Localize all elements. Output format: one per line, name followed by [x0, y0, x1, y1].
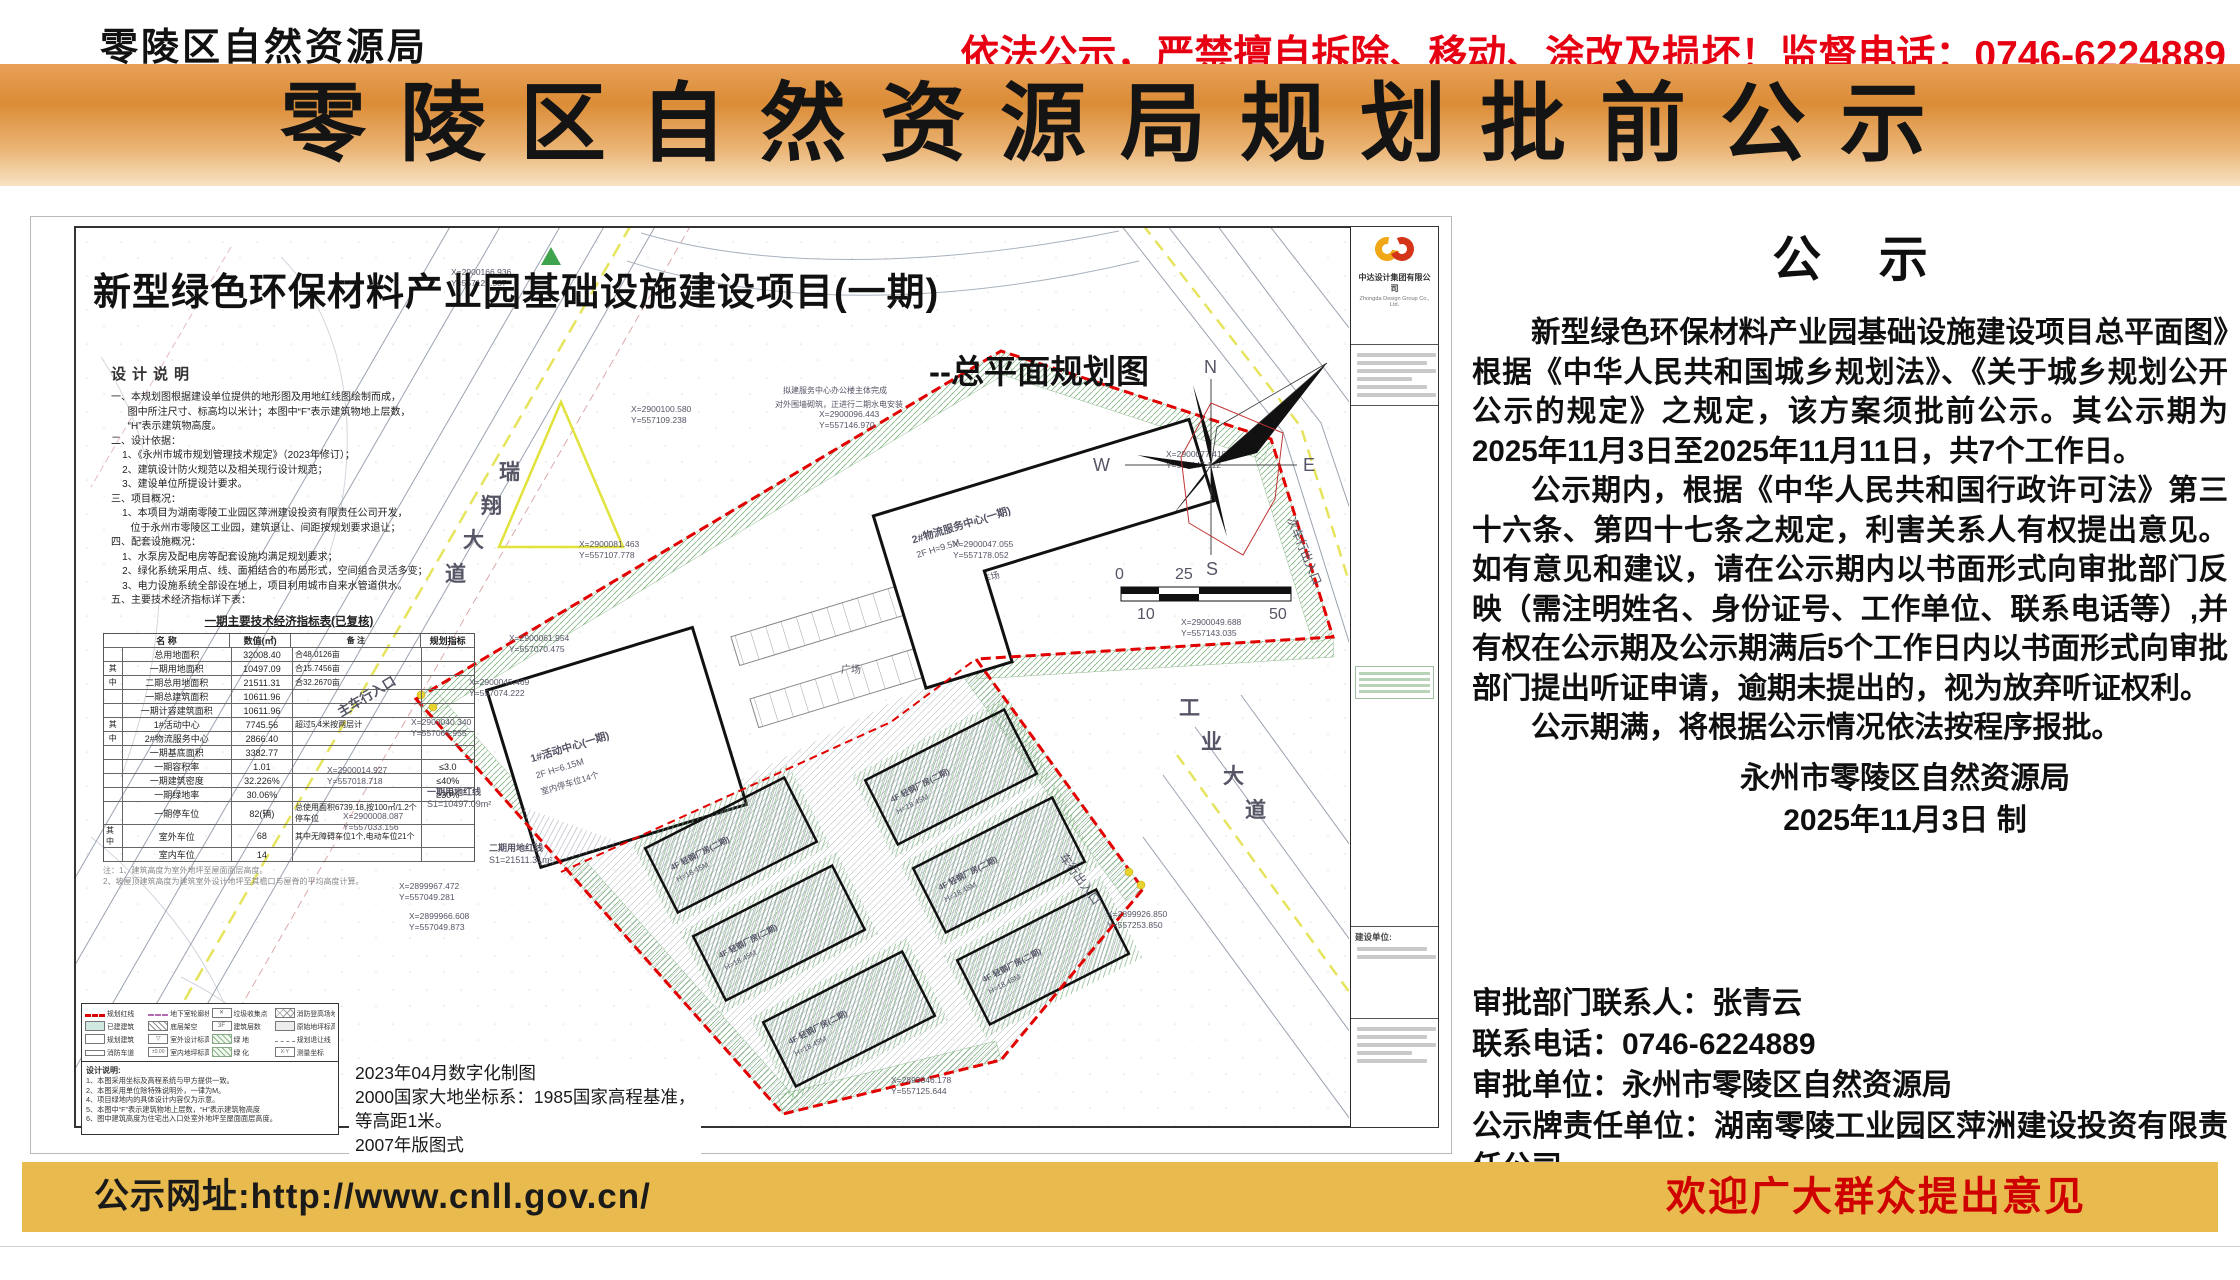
svg-text:25: 25 — [1175, 566, 1193, 583]
svg-text:10: 10 — [1137, 606, 1155, 623]
legend-swatch — [85, 1050, 105, 1056]
svg-text:Y=557143.035: Y=557143.035 — [1181, 628, 1237, 638]
design-note-line: 3、电力设施系统全部设在地上，项目利用城市自来水管道供水。 — [111, 580, 491, 595]
design-note-line: 五、主要技术经济指标详下表： — [111, 594, 491, 609]
survey-info-line: 2023年04月数字化制图 — [355, 1061, 695, 1085]
svg-text:X=2900077.410: X=2900077.410 — [1166, 449, 1227, 459]
legend-swatch — [275, 1047, 295, 1057]
legend-item: 建筑层数 — [212, 1021, 272, 1031]
indicator-table-row: 一期停车位 82(辆) 总使用面积6739.18,按100㎡/1.2个停车位 — [104, 802, 474, 825]
title-block-fineprint — [1351, 345, 1438, 406]
title-block-mini-table — [1355, 666, 1434, 699]
legend-label: 规划建筑 — [107, 1034, 134, 1044]
notice-paragraph-1: 新型绿色环保材料产业园基础设施建设项目总平面图》根据《中华人民共和国城乡规划法》… — [1472, 313, 2228, 471]
company-name-en: Zhongda Design Group Co., Ltd. — [1355, 296, 1434, 308]
title-banner: 零陵区自然资源局规划批前公示 — [0, 64, 2240, 186]
indicator-table-header: 名 称 数值(㎡) 备 注 规划指标 — [104, 634, 474, 648]
legend-swatch — [148, 1047, 168, 1057]
legend-label: 原始地坪标高 — [297, 1021, 335, 1031]
svg-text:X=2900061.954: X=2900061.954 — [509, 633, 570, 643]
compass-west: W — [1093, 455, 1110, 475]
indicator-table-row: 一期基底面积 3382.77 — [104, 746, 474, 760]
legend-label: 室内地坪标高 — [170, 1047, 208, 1057]
welcome-message: 欢迎广大群众提出意见 — [1666, 1162, 2086, 1232]
svg-text:X=2900049.688: X=2900049.688 — [1181, 617, 1242, 627]
svg-text:Y=557049.873: Y=557049.873 — [409, 922, 465, 932]
title-block-footer — [1351, 1019, 1438, 1127]
title-block-empty — [1351, 406, 1438, 927]
legend-item: 垃圾收集点 — [212, 1008, 272, 1018]
legend-swatch — [85, 1021, 105, 1031]
legend-swatch — [148, 1034, 168, 1044]
legend-item: 绿 化 — [212, 1047, 272, 1057]
design-note-line: 二、设计依据： — [111, 435, 491, 450]
notice-paragraph-3: 公示期满，将根据公示情况依法按程序报批。 — [1472, 708, 2228, 748]
design-note-line: 3、建设单位所提设计要求。 — [111, 478, 491, 493]
design-notes: 设计说明 一、本规划图根据建设单位提供的地形图及用地红线图绘制而成， 图中所注尺… — [111, 363, 491, 609]
survey-info: 2023年04月数字化制图2000国家大地坐标系：1985国家高程基准，等高距1… — [349, 1059, 701, 1159]
svg-text:瑞: 瑞 — [499, 461, 520, 484]
plaza-label: 广场 — [841, 663, 861, 676]
legend-label: 底层架空 — [170, 1021, 197, 1031]
notice-contact-line: 审批单位：永州市零陵区自然资源局 — [1472, 1065, 2228, 1106]
design-note-line: 位于永州市零陵区工业园，建筑退让、间距按规划要求退让； — [111, 522, 491, 537]
survey-info-line: 2007年版图式 — [355, 1133, 695, 1157]
site-note-2: 对外围墙砌筑，正进行二期水电安装 — [775, 399, 903, 409]
legend-label: 地下室轮廓线 — [170, 1008, 208, 1018]
svg-text:Y=557146.970: Y=557146.970 — [819, 420, 875, 430]
indicator-table-footnote: 注：1、建筑高度为室外地坪至屋面面层高度。 — [103, 866, 475, 877]
indicator-table-row: 中 2#物流服务中心 2866.40 — [104, 732, 474, 746]
legend-swatch — [148, 1014, 168, 1016]
notice-signature-org: 永州市零陵区自然资源局 — [1527, 758, 2240, 800]
phase2-boundary-label: 二期用地红线 — [489, 842, 543, 853]
indicator-table-row: 其中 室外车位 68 其中无障碍车位1个,电动车位21个 — [104, 825, 474, 848]
indicator-table: 一期主要技术经济指标表(已复核) 名 称 数值(㎡) 备 注 规划指标 总用地面… — [103, 613, 475, 887]
legend-item: 绿 地 — [212, 1034, 272, 1044]
notice-contact-line: 联系电话：0746-6224889 — [1472, 1024, 2228, 1065]
compass-north: N — [1204, 357, 1217, 377]
compass-south: S — [1206, 559, 1218, 579]
design-note-line: 2、建筑设计防火规范以及相关现行设计规范； — [111, 464, 491, 479]
indicator-table-row: 其 一期用地面积 10497.09 合15.7456亩 — [104, 662, 474, 676]
legend-label: 建筑层数 — [234, 1021, 261, 1031]
svg-text:Y=557109.238: Y=557109.238 — [631, 415, 687, 425]
compass-east: E — [1303, 455, 1315, 475]
legend-side-notes: 设计说明: 1、本图采用坐标及高程系统与甲方提供一致。2、本图采用单位除特殊说明… — [82, 1062, 338, 1127]
legend-item: 规划红线 — [85, 1008, 145, 1018]
design-note-line: 1、《永州市城市规划管理技术规定》（2023年修订）； — [111, 449, 491, 464]
legend-swatch — [212, 1008, 232, 1018]
survey-info-line: 2000国家大地坐标系：1985国家高程基准， — [355, 1085, 695, 1109]
design-note-line: 图中所注尺寸、标高均以米计；本图中“F”表示建筑物地上层数， — [111, 406, 491, 421]
notice-signature-date: 2025年11月3日 制 — [1527, 800, 2240, 842]
drawing-title: 新型绿色环保材料产业园基础设施建设项目(一期) — [93, 261, 939, 316]
legend-item: 规划退让线 — [275, 1034, 335, 1044]
legend-swatch — [212, 1034, 232, 1044]
indicator-table-row: 一期容积率 1.01 ≤3.0 — [104, 760, 474, 774]
legend-swatch — [85, 1014, 105, 1017]
indicator-table-row: 一期总建筑面积 10611.96 — [104, 690, 474, 704]
svg-text:X=2900100.580: X=2900100.580 — [631, 404, 692, 414]
design-note-line: 三、项目概况： — [111, 493, 491, 508]
design-note-line: 四、配套设施概况： — [111, 536, 491, 551]
design-note-line: 1、本项目为湖南零陵工业园区萍洲建设投资有限责任公司开发， — [111, 507, 491, 522]
legend-swatch — [275, 1021, 295, 1031]
company-name-cn: 中达设计集团有限公司 — [1355, 272, 1434, 294]
design-note-line: “H”表示建筑物高度。 — [111, 420, 491, 435]
legend-note-line: 5、本图中“F”表示建筑物地上层数，“H”表示建筑物高度 — [86, 1105, 334, 1115]
legend-item: 消防车道 — [85, 1047, 145, 1057]
svg-text:X=2900047.055: X=2900047.055 — [953, 539, 1014, 549]
survey-info-line: 等高距1米。 — [355, 1109, 695, 1133]
legend-label: 消防车道 — [107, 1047, 134, 1057]
legend-item: 室内地坪标高 — [148, 1047, 208, 1057]
indicator-table-row: 其 1#活动中心 7745.56 超过5.4米按两层计 — [104, 718, 474, 732]
indicator-table-row: 中 二期总用地面积 21511.31 合32.2670亩 — [104, 676, 474, 690]
svg-text:Y=557253.850: Y=557253.850 — [1107, 920, 1163, 930]
legend-item: 地下室轮廓线 — [148, 1008, 208, 1018]
legend-item: 室外设计标高 — [148, 1034, 208, 1044]
notice-contact-line: 审批部门联系人：张青云 — [1472, 983, 2228, 1024]
design-notes-title: 设计说明 — [111, 363, 491, 384]
legend-label: 规划红线 — [107, 1008, 134, 1018]
svg-text:Y=557107.778: Y=557107.778 — [579, 550, 635, 560]
indicator-table-row: 一期绿地率 30.06% ≥30% — [104, 788, 474, 802]
svg-text:X=2899846.178: X=2899846.178 — [891, 1075, 952, 1085]
legend-label: 垃圾收集点 — [234, 1008, 268, 1018]
notice-paragraph-2: 公示期内，根据《中华人民共和国行政许可法》第三十六条、第四十七条之规定，利害关系… — [1472, 471, 2228, 708]
svg-text:X=2899966.608: X=2899966.608 — [409, 911, 470, 921]
design-note-line: 1、水泵房及配电房等配套设施均满足规划要求； — [111, 551, 491, 566]
svg-text:工: 工 — [1179, 697, 1200, 720]
legend-swatch — [275, 1041, 295, 1042]
svg-text:大: 大 — [1223, 765, 1244, 788]
indicator-table-row: 总用地面积 32008.40 合48.0126亩 — [104, 648, 474, 662]
legend-item: 规划建筑 — [85, 1034, 145, 1044]
banner-title: 零陵区自然资源局规划批前公示 — [0, 64, 2240, 184]
notice-board-page: 零陵区自然资源局 Lingling District Natural Resou… — [0, 0, 2240, 1280]
indicator-table-row: 室内车位 14 — [104, 848, 474, 862]
legend-swatch — [275, 1008, 295, 1018]
legend-note-line: 1、本图采用坐标及高程系统与甲方提供一致。 — [86, 1076, 334, 1086]
legend-note-line: 6、图中建筑高度为住宅出入口处室外地坪至屋面面层高度。 — [86, 1114, 334, 1124]
drawing-title-block: 中达设计集团有限公司 Zhongda Design Group Co., Ltd… — [1350, 227, 1438, 1127]
site-note-1: 拟建服务中心办公楼主体完成 — [783, 385, 887, 395]
svg-text:业: 业 — [1201, 731, 1222, 754]
design-company-block: 中达设计集团有限公司 Zhongda Design Group Co., Ltd… — [1351, 227, 1438, 345]
public-notice-panel: 公 示 新型绿色环保材料产业园基础设施建设项目总平面图》根据《中华人民共和国城乡… — [1472, 220, 2228, 1229]
legend-box: 规划红线 地下室轮廓线 垃圾收集点 消防登高场地 — [81, 1003, 339, 1135]
svg-text:X=2900081.463: X=2900081.463 — [579, 539, 640, 549]
legend-label: 绿 地 — [234, 1034, 249, 1044]
notice-website-url: 公示网址:http://www.cnll.gov.cn/ — [94, 1162, 651, 1232]
svg-text:X=2899926.850: X=2899926.850 — [1107, 909, 1168, 919]
legend-item: 已建建筑 — [85, 1021, 145, 1031]
legend-label: 已建建筑 — [107, 1021, 134, 1031]
legend-label: 规划退让线 — [297, 1034, 331, 1044]
legend-note-line: 2、本图采用单位除特殊说明外，一律为M。 — [86, 1086, 334, 1096]
svg-text:50: 50 — [1269, 606, 1287, 623]
design-note-line: 2、绿化系统采用点、线、面相结合的布局形式，空间组合灵活多变； — [111, 565, 491, 580]
drawing-subtitle: --总平面规划图 — [929, 345, 1149, 393]
site-plan-panel: 停车场 2#物流服务中心(一期) 2F H=9.5M 1#活动中心(一期) 2F… — [30, 216, 1452, 1154]
notice-heading: 公 示 — [1472, 220, 2228, 291]
legend-label: 室外设计标高 — [170, 1034, 208, 1044]
svg-text:Y=557074.222: Y=557074.222 — [469, 688, 525, 698]
footer-bar: 公示网址:http://www.cnll.gov.cn/ 欢迎广大群众提出意见 — [22, 1162, 2218, 1232]
svg-text:X=2900045.469: X=2900045.469 — [469, 677, 530, 687]
svg-text:Y=557125.644: Y=557125.644 — [891, 1086, 947, 1096]
legend-item: 原始地坪标高 — [275, 1021, 335, 1031]
title-block-client: 建设单位: — [1351, 927, 1438, 1019]
indicator-table-title: 一期主要技术经济指标表(已复核) — [103, 613, 475, 629]
legend-item: 测量坐标 — [275, 1047, 335, 1057]
legend-note-line: 4、项目绿地内的具体设计内容仅为示意。 — [86, 1095, 334, 1105]
indicator-table-row: 一期计容建筑面积 10611.96 — [104, 704, 474, 718]
legend-item: 底层架空 — [148, 1021, 208, 1031]
design-note-line: 一、本规划图根据建设单位提供的地形图及用地红线图绘制而成， — [111, 391, 491, 406]
legend-label: 绿 化 — [234, 1047, 249, 1057]
legend-swatch — [85, 1034, 105, 1044]
indicator-table-row: 一期建筑密度 32.226% ≤40% — [104, 774, 474, 788]
legend-label: 测量坐标 — [297, 1047, 324, 1057]
svg-text:X=2900096.443: X=2900096.443 — [819, 409, 880, 419]
svg-text:Y=557049.281: Y=557049.281 — [399, 892, 455, 902]
page-bottom-line — [0, 1246, 2240, 1247]
legend-swatch — [212, 1047, 232, 1057]
legend-swatch — [148, 1021, 168, 1031]
svg-text:Y=557178.052: Y=557178.052 — [953, 550, 1009, 560]
legend-item: 消防登高场地 — [275, 1008, 335, 1018]
legend-swatch — [212, 1021, 232, 1031]
svg-text:0: 0 — [1115, 566, 1124, 583]
svg-text:S1=21511.31m²: S1=21511.31m² — [489, 855, 553, 865]
svg-text:Y=557070.475: Y=557070.475 — [509, 644, 565, 654]
legend-label: 消防登高场地 — [297, 1008, 335, 1018]
svg-text:道: 道 — [1245, 798, 1266, 822]
indicator-table-footnote: 2、坡屋顶建筑高度为建筑室外设计地坪至其檐口与屋脊的平均高度计算。 — [103, 877, 475, 888]
